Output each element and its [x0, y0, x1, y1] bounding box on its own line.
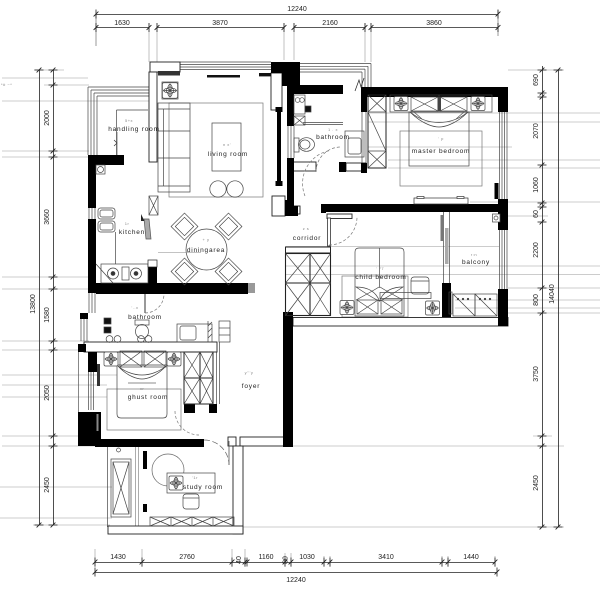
- svg-text:2450: 2450: [533, 475, 540, 491]
- svg-text:1r: 1r: [125, 221, 130, 226]
- svg-text:2450: 2450: [44, 477, 51, 493]
- svg-text:n x': n x': [223, 142, 231, 147]
- svg-text:foyer: foyer: [242, 383, 260, 390]
- svg-text:kitchen: kitchen: [119, 229, 145, 236]
- svg-text:+ y: + y: [203, 237, 210, 242]
- svg-text:1440: 1440: [463, 554, 479, 561]
- svg-text:800: 800: [533, 294, 540, 306]
- svg-text:2160: 2160: [322, 20, 338, 27]
- svg-text:z s: z s: [303, 226, 310, 231]
- svg-text:'1r: '1r: [192, 475, 198, 480]
- svg-text:' 77: ' 77: [376, 266, 385, 271]
- svg-text:3870: 3870: [212, 20, 228, 27]
- svg-text:60: 60: [533, 210, 540, 218]
- svg-text:' p: ' p: [438, 136, 444, 141]
- svg-text:study room: study room: [183, 484, 223, 491]
- svg-text:r:n: r:n: [471, 252, 477, 257]
- svg-text:1430: 1430: [110, 554, 126, 561]
- svg-text:2070: 2070: [533, 123, 540, 139]
- svg-text:1060: 1060: [533, 177, 540, 193]
- svg-text:40: 40: [236, 556, 243, 564]
- svg-text:diningarea: diningarea: [187, 247, 225, 254]
- svg-text:3410: 3410: [378, 554, 394, 561]
- svg-text:2000: 2000: [44, 110, 51, 126]
- svg-text:80: 80: [283, 556, 290, 564]
- svg-text:1580: 1580: [44, 307, 51, 323]
- svg-text:handling room: handling room: [108, 126, 160, 133]
- svg-text:2200: 2200: [533, 242, 540, 258]
- svg-text:5+x: 5+x: [125, 118, 133, 123]
- svg-text:bathroom: bathroom: [128, 314, 162, 321]
- svg-text:living room: living room: [208, 151, 248, 158]
- svg-text:12240: 12240: [287, 6, 307, 13]
- svg-text:1 . x: 1 . x: [328, 127, 338, 132]
- svg-text:14040: 14040: [549, 284, 556, 304]
- svg-text:1630: 1630: [114, 20, 130, 27]
- svg-text:balcony: balcony: [462, 259, 490, 266]
- svg-text:3860: 3860: [426, 20, 442, 27]
- svg-text:690: 690: [533, 74, 540, 86]
- svg-text:2760: 2760: [179, 554, 195, 561]
- svg-text:*# ~*: *# ~*: [1, 82, 12, 87]
- svg-text:ghust room: ghust room: [128, 394, 169, 401]
- svg-text:12240: 12240: [286, 577, 306, 584]
- svg-text:3750: 3750: [533, 366, 540, 382]
- svg-text:13800: 13800: [30, 294, 37, 314]
- svg-text:bathroom: bathroom: [316, 134, 350, 141]
- svg-text:2050: 2050: [44, 385, 51, 401]
- svg-text:'..x: '..x: [132, 305, 139, 310]
- svg-text:corridor: corridor: [293, 235, 321, 242]
- svg-text:child bedroom: child bedroom: [355, 274, 406, 281]
- svg-text:y'''y: y'''y: [245, 370, 254, 375]
- svg-text:1030: 1030: [299, 554, 315, 561]
- svg-text:1160: 1160: [258, 554, 273, 561]
- svg-text:xr: xr: [140, 386, 145, 391]
- svg-text:3660: 3660: [44, 209, 51, 225]
- svg-text:master bedroom: master bedroom: [412, 148, 471, 155]
